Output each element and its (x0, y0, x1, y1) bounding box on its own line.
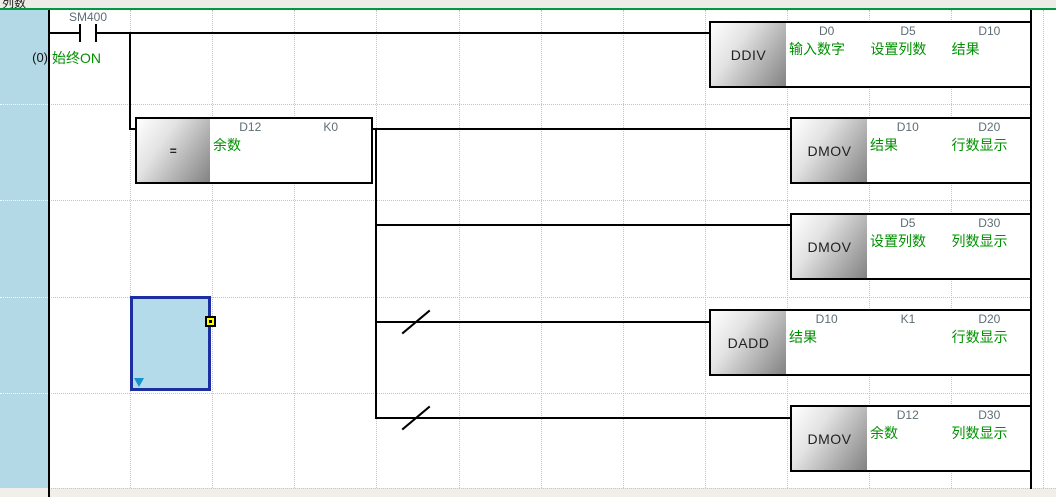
operand-comment: 结果 (786, 327, 867, 347)
instruction-name: DMOV (792, 119, 867, 182)
instruction-block-dmov-2[interactable]: DMOV D5 设置列数 D30 列数显示 (790, 213, 1032, 280)
operand-cell[interactable]: D12 余数 (867, 407, 949, 470)
operand-comment: 输入数字 (786, 39, 867, 59)
statement-separator-line (0, 8, 1056, 10)
operand-comment: 行数显示 (949, 135, 1031, 155)
statement-text: 列数 (2, 0, 26, 8)
operand-cell[interactable]: D30 列数显示 (949, 407, 1031, 470)
handle-dot-icon (209, 320, 212, 323)
operand-cell[interactable]: D10 结果 (867, 119, 949, 182)
operand-device: D20 (949, 119, 1031, 134)
contact-left-bar[interactable] (79, 24, 81, 42)
sidebar-separator (0, 200, 48, 201)
operand-cell[interactable]: D10 结果 (949, 23, 1030, 86)
instruction-block-dadd[interactable]: DADD D10 结果 K1 D20 行数显示 (709, 309, 1032, 376)
operand-device: K0 (291, 119, 372, 134)
instruction-name: DADD (711, 311, 786, 374)
operand-cell[interactable]: D10 结果 (786, 311, 867, 374)
instruction-name: DMOV (792, 407, 867, 470)
operand-device: D10 (867, 119, 949, 134)
operand-cell[interactable]: D12 余数 (210, 119, 291, 182)
operand-cell[interactable]: D0 输入数字 (786, 23, 867, 86)
gridline (48, 488, 1056, 489)
wire (373, 128, 790, 130)
contact-device-label: SM400 (62, 10, 114, 24)
operand-cell[interactable]: D30 列数显示 (949, 215, 1031, 278)
instruction-block-equals[interactable]: = D12 余数 K0 (135, 117, 373, 184)
operand-device: D30 (949, 407, 1031, 422)
operand-comment: 结果 (867, 135, 949, 155)
gridline (1043, 10, 1044, 488)
selection-resize-handle[interactable] (205, 316, 216, 327)
wire (50, 32, 79, 34)
operand-cell[interactable]: D20 行数显示 (949, 311, 1030, 374)
edit-position-triangle-icon (134, 378, 144, 387)
gridline (48, 200, 1030, 201)
operand-cell[interactable]: D5 设置列数 (867, 23, 948, 86)
instruction-block-dmov-3[interactable]: DMOV D12 余数 D30 列数显示 (790, 405, 1032, 472)
gridline (294, 10, 295, 488)
operand-device: D20 (949, 311, 1030, 326)
statement-row[interactable]: 列数 (0, 0, 1056, 8)
instruction-name: = (137, 119, 210, 182)
wire (97, 32, 709, 34)
operand-device: D5 (867, 215, 949, 230)
operand-comment: 行数显示 (949, 327, 1030, 347)
wire (375, 224, 790, 226)
operand-cell[interactable]: D5 设置列数 (867, 215, 949, 278)
operand-cell[interactable]: D20 行数显示 (949, 119, 1031, 182)
instruction-name: DDIV (711, 23, 786, 86)
bottom-row-strip (0, 488, 1056, 497)
gridline (48, 393, 1030, 394)
selection-cursor[interactable] (130, 296, 211, 391)
operand-device: D12 (210, 119, 291, 134)
operand-device: D5 (867, 23, 948, 38)
operand-device: D10 (786, 311, 867, 326)
operand-device: D12 (867, 407, 949, 422)
ladder-editor: 列数 SM400 (0) 始终ON DDIV (0, 0, 1056, 497)
operand-comment: 列数显示 (949, 231, 1031, 251)
wire (375, 417, 790, 419)
operand-device: D10 (949, 23, 1030, 38)
gridline (48, 104, 1030, 105)
left-power-rail (48, 9, 50, 497)
operand-cell[interactable]: K0 (291, 119, 372, 182)
operand-comment: 余数 (867, 423, 949, 443)
sidebar-separator (0, 104, 48, 105)
operand-device: K1 (867, 311, 948, 326)
step-number: (0) (10, 50, 48, 65)
instruction-block-ddiv[interactable]: DDIV D0 输入数字 D5 设置列数 D10 结果 (709, 21, 1032, 88)
sidebar-separator (0, 297, 48, 298)
operand-comment: 设置列数 (867, 39, 948, 59)
contact-comment: 始终ON (52, 48, 101, 68)
wire-branch (129, 32, 131, 130)
operand-comment: 结果 (949, 39, 1030, 59)
operand-device: D30 (949, 215, 1031, 230)
sidebar-separator (0, 393, 48, 394)
instruction-name: DMOV (792, 215, 867, 278)
operand-comment: 列数显示 (949, 423, 1031, 443)
operand-comment: 设置列数 (867, 231, 949, 251)
operand-cell[interactable]: K1 (867, 311, 948, 374)
gridline (212, 10, 213, 488)
wire-branch (375, 128, 377, 419)
operand-comment: 余数 (210, 135, 291, 155)
left-margin-bar[interactable] (0, 9, 48, 488)
operand-device: D0 (786, 23, 867, 38)
wire (375, 321, 709, 323)
instruction-block-dmov-1[interactable]: DMOV D10 结果 D20 行数显示 (790, 117, 1032, 184)
